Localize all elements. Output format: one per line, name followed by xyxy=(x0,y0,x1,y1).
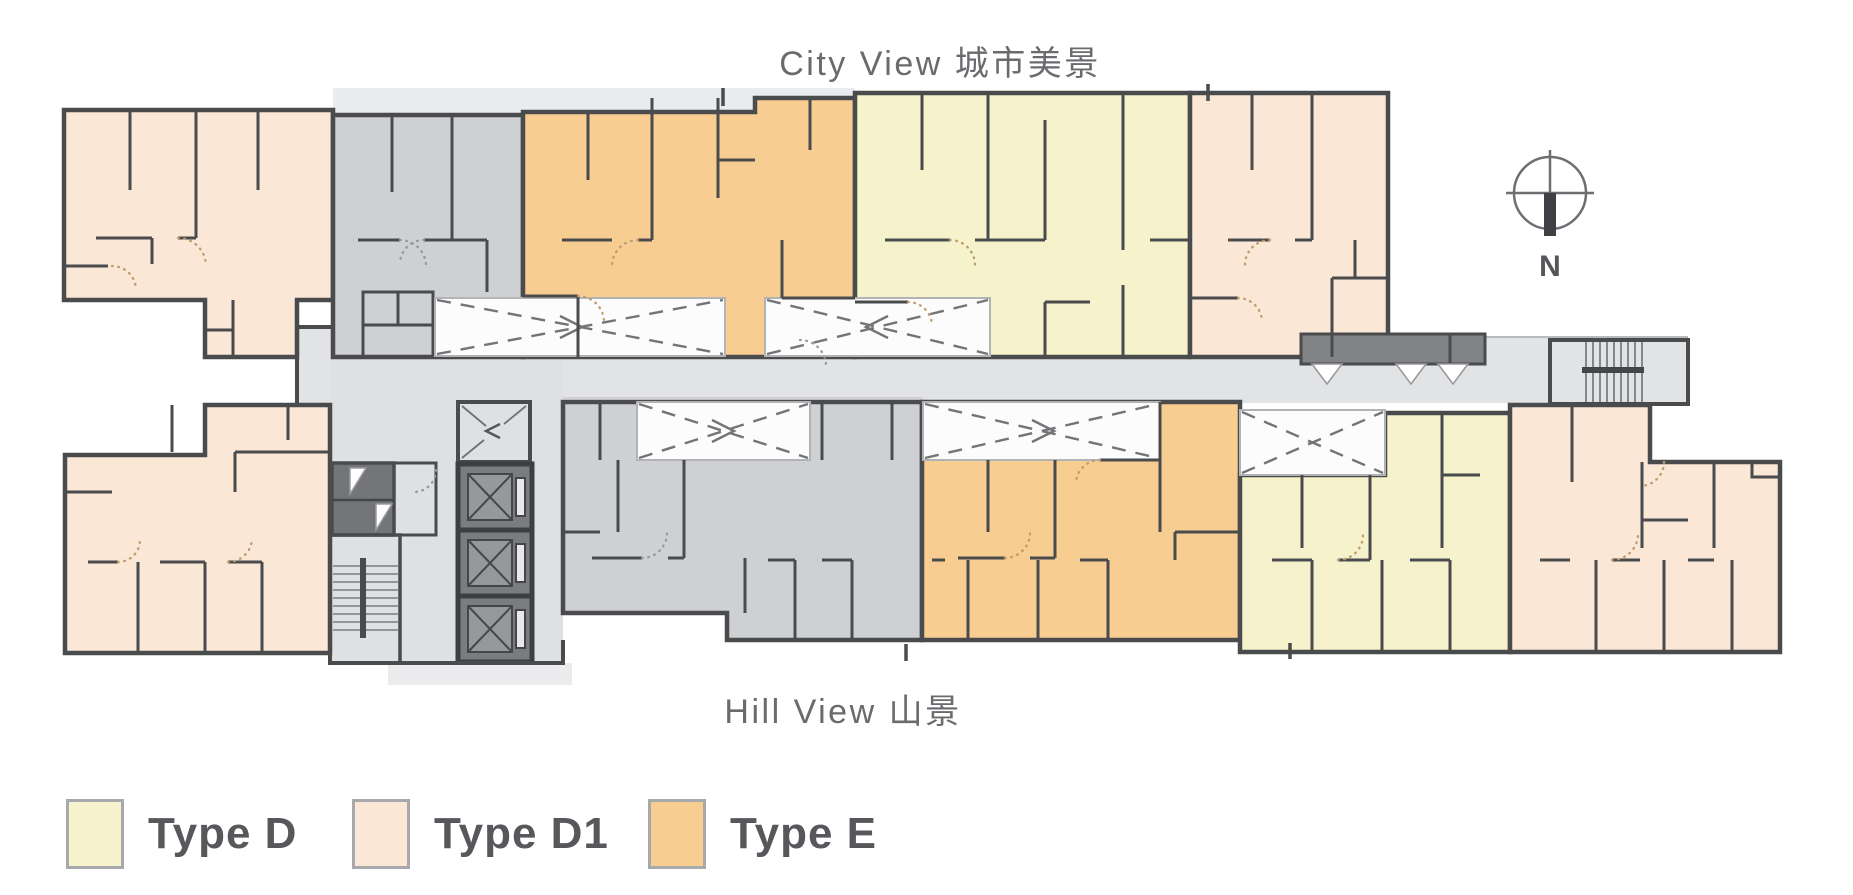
legend-item-type-d: Type D xyxy=(66,796,297,872)
compass-needle xyxy=(1544,193,1556,236)
hill-view-label: Hill View 山景 xyxy=(724,684,961,733)
void-box xyxy=(923,402,1160,460)
compass-north-label: N xyxy=(1539,250,1561,283)
void-box xyxy=(637,402,810,460)
void-box xyxy=(435,298,725,356)
core-shadow xyxy=(388,663,572,685)
floor-plan-page: N City View 城市美景 Hill View 山景 Type D Typ… xyxy=(0,0,1853,895)
legend-item-type-e: Type E xyxy=(648,796,877,872)
legend-swatch-type-d1 xyxy=(352,799,410,869)
void-box xyxy=(1240,410,1385,475)
floor-plan: N xyxy=(0,0,1853,895)
elevator-car xyxy=(458,530,532,596)
unit-type-d1-top-right xyxy=(1190,93,1388,357)
void-box xyxy=(765,298,990,356)
unit-type-d1-bottom-left xyxy=(65,405,330,653)
elevator-car xyxy=(458,596,532,662)
elevator-bank xyxy=(458,464,532,662)
compass: N xyxy=(1506,150,1594,283)
city-view-label: City View 城市美景 xyxy=(779,36,1101,85)
legend-item-type-d1: Type D1 xyxy=(352,796,609,872)
legend-swatch-type-d xyxy=(66,799,124,869)
unit-type-d1-bottom-right xyxy=(1510,405,1780,652)
elevator-car xyxy=(458,464,532,530)
legend-swatch-type-e xyxy=(648,799,706,869)
legend: Type D Type D1 Type E xyxy=(0,796,1000,876)
unit-type-d1-top-left xyxy=(64,110,333,357)
legend-label-type-e: Type E xyxy=(730,809,877,859)
legend-label-type-d: Type D xyxy=(148,809,297,859)
legend-label-type-d1: Type D1 xyxy=(434,809,609,859)
